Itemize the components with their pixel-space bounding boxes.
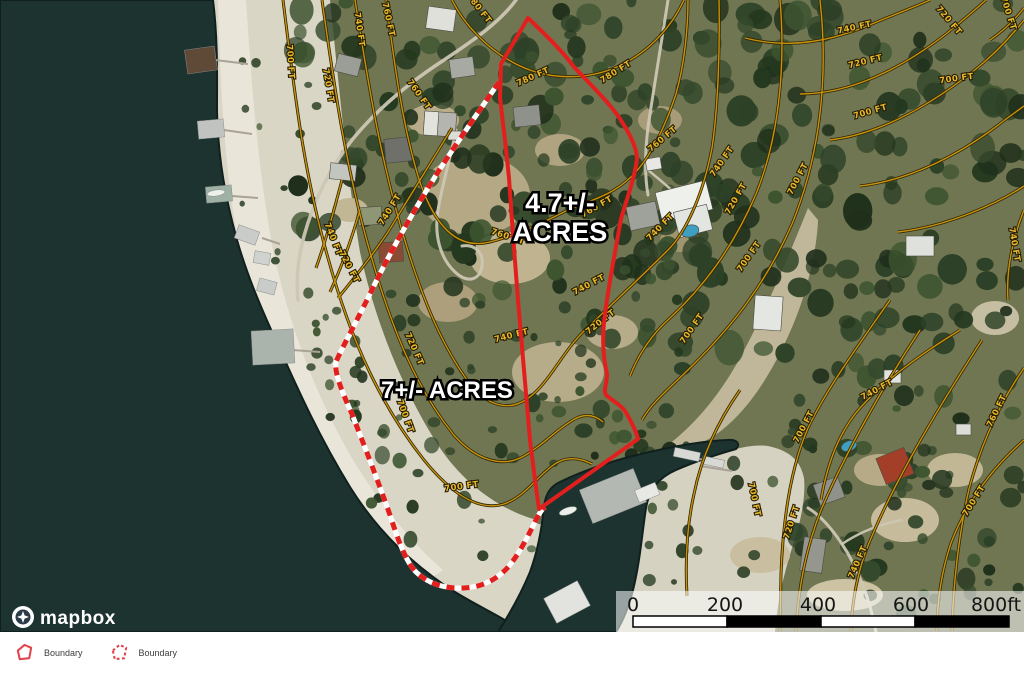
legend-label: Boundary bbox=[44, 648, 83, 658]
scale-tick-0: 0 bbox=[627, 594, 639, 616]
scale-tick-400: 400 bbox=[800, 594, 836, 616]
parcel-b-label: 7+/- ACRES bbox=[381, 377, 513, 404]
legend-label: Boundary bbox=[139, 648, 178, 658]
scale-tick-800ft: 800ft bbox=[971, 594, 1021, 616]
boathouse-slips bbox=[251, 329, 295, 365]
parcel-a-label-line1: 4.7+/- bbox=[525, 188, 595, 218]
boundary-solid-icon bbox=[14, 643, 35, 662]
legend-item-boundary-dashed: Boundary bbox=[109, 643, 178, 662]
boundary-dashed-icon bbox=[109, 643, 130, 662]
scale-bar: 0 200 400 600 800ft bbox=[616, 591, 1024, 632]
mapbox-logo-text: mapbox bbox=[40, 608, 116, 629]
mapbox-logo[interactable]: mapbox bbox=[12, 606, 116, 629]
legend-item-boundary-solid: Boundary bbox=[14, 643, 83, 662]
parcel-a-label-line2: ACRES bbox=[513, 217, 608, 247]
legend: Boundary Boundary bbox=[0, 632, 1024, 691]
map-canvas[interactable]: 700 FT720 FT740 FT760 FT760 FT740 FT720 … bbox=[0, 0, 1024, 632]
boathouse-brown bbox=[184, 46, 217, 74]
map-screenshot: 700 FT720 FT740 FT760 FT760 FT740 FT720 … bbox=[0, 0, 1024, 691]
scale-tick-600: 600 bbox=[893, 594, 929, 616]
scale-tick-200: 200 bbox=[707, 594, 743, 616]
